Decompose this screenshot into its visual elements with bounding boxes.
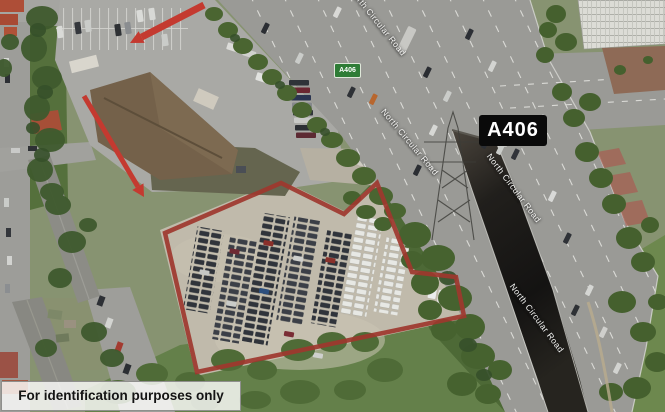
aerial-site-plan: North Circular Road North Circular Road … [0, 0, 665, 412]
aerial-photo [0, 0, 665, 412]
slip-road-route-sign: A406 [334, 63, 361, 78]
route-badge-a406: A406 [479, 115, 547, 146]
identification-caption: For identification purposes only [1, 381, 241, 411]
